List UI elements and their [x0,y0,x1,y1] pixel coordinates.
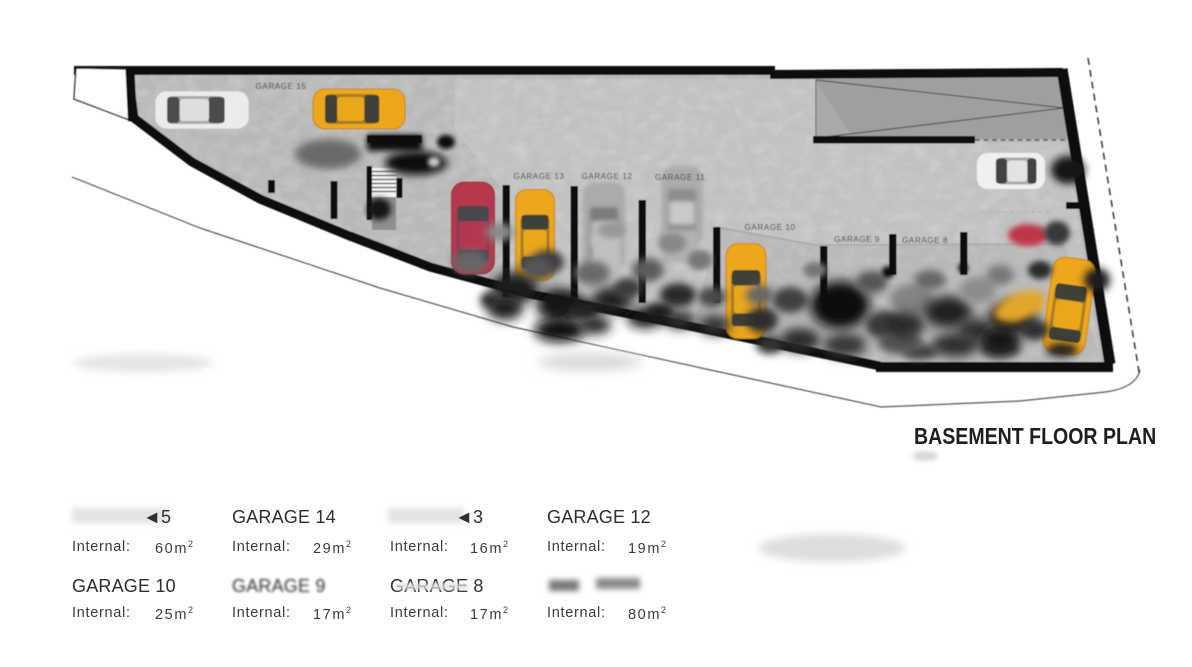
svg-text:GARAGE 15: GARAGE 15 [256,82,307,91]
svg-text:GARAGE 8: GARAGE 8 [902,236,948,245]
svg-text:GARAGE 12: GARAGE 12 [582,172,633,181]
svg-text:GARAGE 9: GARAGE 9 [834,235,880,244]
svg-text:GARAGE 13: GARAGE 13 [514,172,565,181]
svg-text:GARAGE 11: GARAGE 11 [655,173,705,182]
svg-text:GARAGE 10: GARAGE 10 [745,223,796,232]
